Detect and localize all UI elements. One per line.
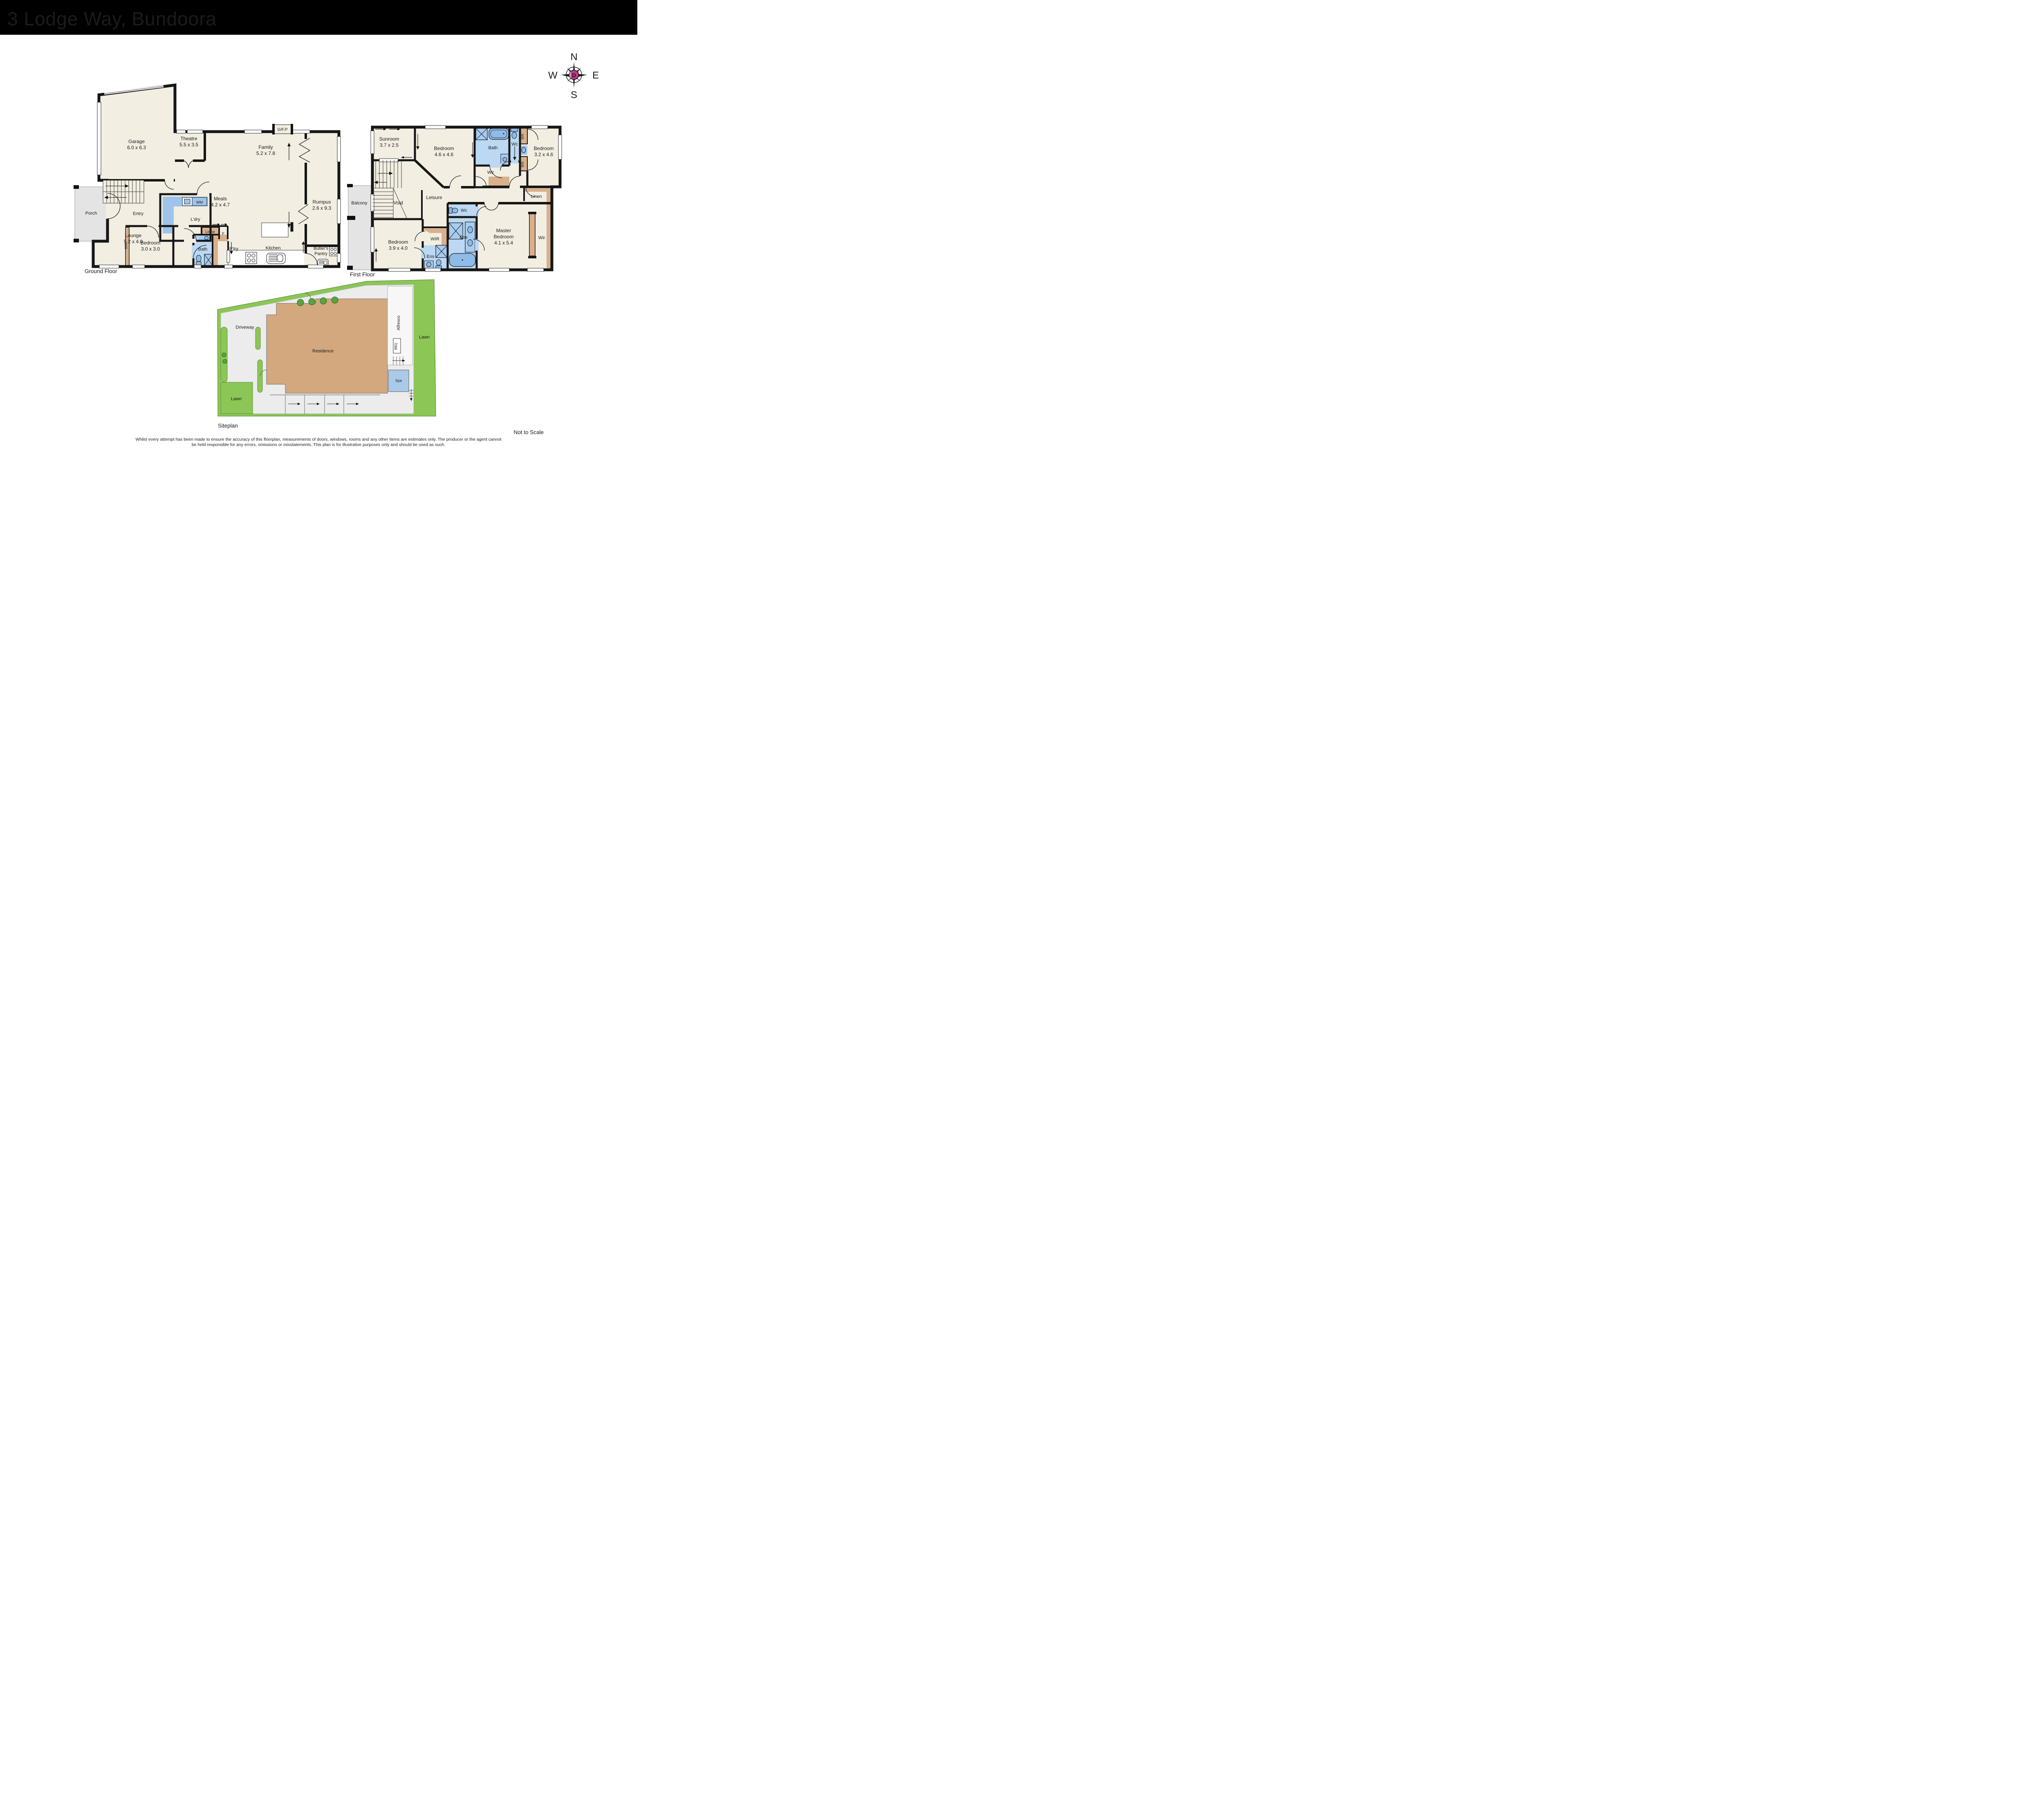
floorplan-svg: 3 Lodge Way, Bundoora D N E S W [0,0,637,450]
room-label-master-2: Bedroom [494,234,514,240]
ground-floor-caption: Ground Floor [85,268,117,274]
disclaimer-line1: Whilst every attempt has been made to en… [136,437,502,442]
room-label-entry: Entry [133,211,143,216]
siteplan: Driveway Residence Lawn Lawn Alfresco BB… [217,280,436,429]
room-label-butlers-1: Butler's [314,246,329,251]
footer: Not to Scale Whilst every attempt has be… [136,429,544,447]
site-label-lawn-bottom: Lawn [231,397,242,401]
first-floor-plan: Sunroom 3.7 x 2.5 Bedroom 4.6 x 4.6 Bath… [347,126,562,278]
compass-south: S [571,90,577,101]
header-bar: 3 Lodge Way, Bundoora [0,0,637,35]
room-dims-bedroom46: 4.6 x 4.6 [435,152,453,157]
room-label-laundry: L'dry [191,217,200,222]
room-dims-family: 5.2 x 7.8 [256,150,275,156]
room-dims-bedroom39: 3.9 x 4.0 [389,245,408,251]
room-label-bath-gf: Bath [198,247,208,252]
butlers-cooktop-icon [329,247,338,256]
room-label-void: Void [393,200,403,206]
room-label-kitchen: Kitchen [266,246,281,251]
room-label-wc-mid: Wc [461,208,467,213]
gf-stairs [103,180,144,203]
room-label-wir-mid: WIR [430,237,439,242]
kitchen-island [262,223,288,237]
room-label-bedroom: Bedroom [141,240,161,246]
floorplan-page: 3 Lodge Way, Bundoora D N E S W [0,0,637,450]
room-dims-sunroom: 3.7 x 2.5 [380,142,399,148]
fireplace: G/F.P [272,124,293,134]
room-dims-bedroom: 3.0 x 3.0 [141,246,160,252]
room-label-ens-small: Ens [427,254,435,259]
room-label-sunroom: Sunroom [379,136,399,142]
room-dims-rumpus: 2.6 x 9.3 [312,205,331,211]
room-label-porch: Porch [85,211,97,216]
not-to-scale: Not to Scale [513,429,544,435]
basin-icon [205,236,208,240]
site-label-driveway: Driveway [235,325,254,330]
bir-label-gf: BIR [124,243,128,249]
room-label-theatre: Theatre [180,136,197,141]
room-label-balcony: Balcony [351,201,368,206]
room-label-pantry: P'try [229,247,238,251]
site-label-spa: Spa [395,379,402,383]
compass-north: N [570,52,577,63]
room-dims-meals: 4.2 x 4.7 [211,202,230,208]
room-label-garage: Garage [128,139,145,144]
disclaimer-line2: be held responsible for any errors, omis… [192,442,445,447]
room-label-master-1: Master [496,228,511,233]
sink-icon [267,253,285,264]
ff-linen-shelf [525,188,549,192]
room-label-linen-ff: Linen [531,194,542,199]
room-label-ens-large: Ens [460,235,468,240]
room-label-rumpus: Rumpus [313,199,331,205]
gfp-label: G/F.P [277,128,287,132]
room-label-bedroom32: Bedroom [534,146,554,151]
ff-wir-top-shelf [489,177,509,186]
site-label-alfresco: Alfresco [397,316,401,331]
room-label-wc-top: Wc [511,142,518,147]
ff-wc-mid-fixtures [449,208,458,213]
room-dims-bedroom32: 3.2 x 4.6 [534,152,553,157]
bir-label-bottom: BIR [520,161,524,167]
compass-icon: D N E S W [548,52,599,101]
room-label-leisure: Leisure [426,195,442,200]
cooktop-icon [246,252,257,264]
shower-icon [204,254,213,266]
bir-label-top: BIR [520,134,524,139]
room-dims-master: 4.1 x 5.4 [494,240,513,246]
room-label-butlers-2: Pantry [314,251,327,256]
compass-brand-letter: D [572,72,576,78]
room-dims-theatre: 5.5 x 3.5 [179,142,198,148]
siteplan-caption: Siteplan [218,423,238,429]
toilet-icon [196,255,201,265]
ff-master-robe [528,212,536,258]
room-label-meals: Meals [214,196,227,202]
first-floor-caption: First Floor [350,271,375,278]
page-title: 3 Lodge Way, Bundoora [7,8,217,29]
room-label-wir-master: Wir [538,235,545,240]
room-label-linen-gf: Linne [205,230,215,234]
compass-west: W [548,70,558,81]
site-label-residence: Residence [312,349,334,354]
ground-floor-plan: WM [74,85,341,274]
room-label-family: Family [258,144,273,150]
room-label-bath-ff: Bath [489,146,498,150]
wm-label: WM [196,200,203,204]
room-label-lounge: Lounge [125,233,141,238]
room-label-bedroom39: Bedroom [388,239,408,245]
site-label-lawn-right: Lawn [419,335,430,340]
room-label-bedroom46: Bedroom [434,146,454,151]
ff-balcony-area [348,186,372,270]
washing-machine-icon: WM [182,197,207,206]
compass-east: E [592,70,599,81]
room-label-fridge: F [222,232,224,236]
site-label-bbq: BBQ [394,343,398,350]
room-label-wir-top: Wir [487,170,494,175]
site-residence [267,299,388,393]
room-dims-garage: 6.0 x 6.3 [127,145,146,150]
